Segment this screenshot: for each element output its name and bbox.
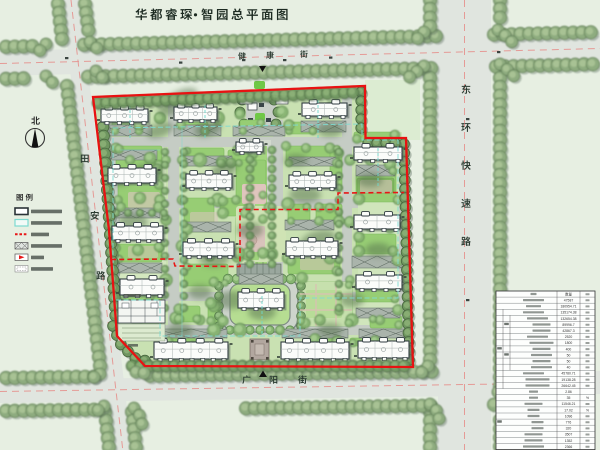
svg-text:3507: 3507 <box>565 433 573 437</box>
svg-text:2.86: 2.86 <box>565 390 572 394</box>
svg-text:135174.38: 135174.38 <box>560 311 576 315</box>
svg-text:776: 776 <box>566 421 572 425</box>
svg-text:1352: 1352 <box>565 439 573 443</box>
svg-text:2520: 2520 <box>565 335 573 339</box>
svg-text:11546.21: 11546.21 <box>562 402 576 406</box>
svg-text:400: 400 <box>566 347 572 351</box>
svg-text:45780.71: 45780.71 <box>561 372 575 376</box>
svg-text:89996.7: 89996.7 <box>562 323 574 327</box>
svg-text:2366: 2366 <box>565 445 573 449</box>
svg-text:180954.71: 180954.71 <box>560 305 576 309</box>
svg-text:26642.45: 26642.45 <box>561 384 575 388</box>
svg-text:19138.28: 19138.28 <box>561 378 575 382</box>
svg-text:50: 50 <box>567 353 571 357</box>
svg-text:%: % <box>586 408 589 412</box>
svg-text:35: 35 <box>567 396 571 400</box>
svg-text:47587: 47587 <box>564 299 574 303</box>
svg-text:40: 40 <box>567 366 571 370</box>
svg-text:50: 50 <box>567 360 571 364</box>
svg-text:1096: 1096 <box>565 414 573 418</box>
svg-text:%: % <box>586 396 589 400</box>
svg-text:132654.38: 132654.38 <box>560 317 576 321</box>
svg-text:42867.3: 42867.3 <box>562 329 574 333</box>
svg-text:1800: 1800 <box>565 341 573 345</box>
svg-text:320: 320 <box>566 427 572 431</box>
svg-text:17.02: 17.02 <box>564 408 573 412</box>
svg-text:数量: 数量 <box>565 291 572 296</box>
